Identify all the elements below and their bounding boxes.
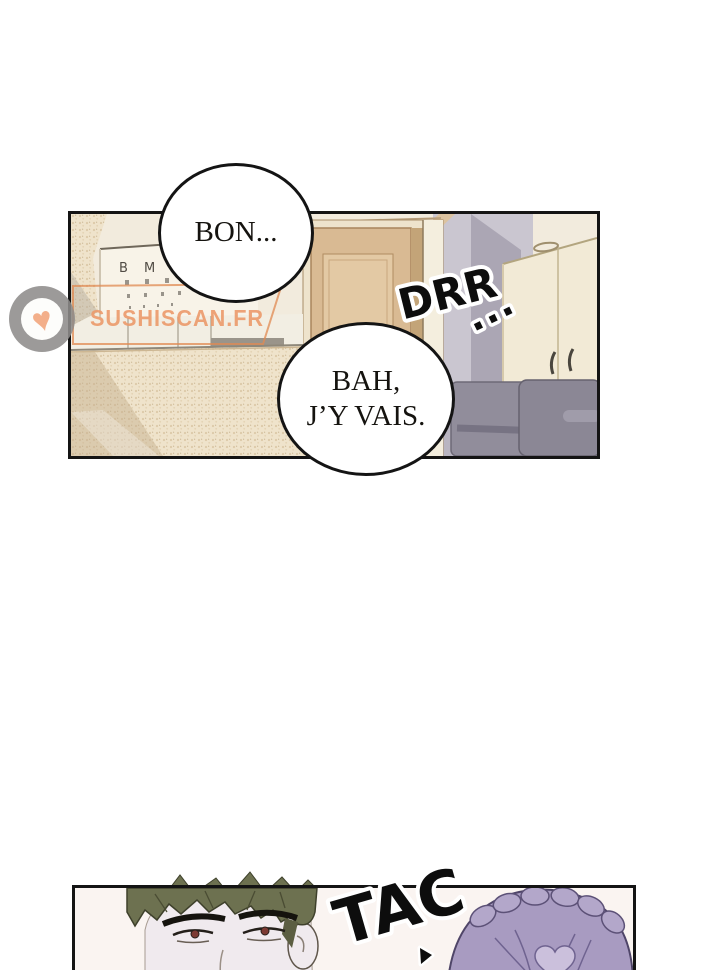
character-man [127, 888, 318, 970]
bubble-text: BON... [195, 215, 278, 250]
sfx-drop-icon [420, 948, 432, 964]
sfx-drr: DRR ... [393, 246, 553, 346]
bubble-text-line2: J’Y VAIS. [307, 399, 426, 434]
sfx-tac: TAC [318, 836, 503, 970]
manga-page: B M W [0, 0, 720, 970]
bubble-text-line1: BAH, [332, 364, 400, 399]
speech-bubble-bon: BON... [158, 163, 314, 303]
watermark-logo: ♥ [9, 286, 75, 352]
watermark-site-name: SUSHISCAN.FR [90, 305, 264, 331]
sfx-tac-text: TAC [326, 853, 472, 959]
